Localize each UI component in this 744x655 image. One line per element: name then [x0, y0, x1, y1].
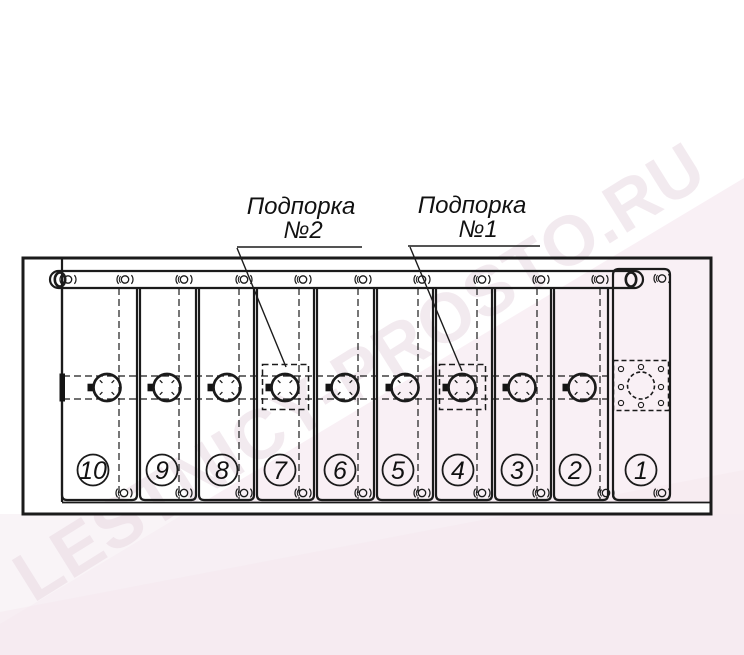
bottom-ledge [62, 503, 710, 514]
rivet-icon [117, 275, 133, 284]
callout-support2: Подпорка №2 [247, 193, 356, 244]
svg-text:3: 3 [510, 457, 524, 485]
svg-text:8: 8 [215, 457, 229, 485]
svg-text:5: 5 [391, 457, 405, 485]
support2-number: №2 [283, 217, 322, 244]
leader-line-2 [237, 248, 286, 367]
hole-circle [148, 374, 181, 401]
svg-text:4: 4 [451, 457, 465, 485]
support2-title: Подпорка [247, 193, 356, 220]
svg-text:9: 9 [155, 457, 169, 485]
svg-text:7: 7 [273, 457, 288, 485]
svg-text:1: 1 [634, 457, 648, 485]
fence-section-drawing: LESTNICY-PROSTO.RU [0, 0, 744, 655]
svg-text:2: 2 [567, 457, 582, 485]
rivet-icon [176, 275, 192, 284]
support1-title: Подпорка [418, 192, 527, 219]
hole-circle [208, 374, 241, 401]
hole-circle [88, 374, 121, 401]
svg-text:6: 6 [333, 457, 347, 485]
rivet-icon [355, 275, 371, 284]
rivet-icon [295, 275, 311, 284]
technical-drawing-page: LESTNICY-PROSTO.RU [0, 0, 744, 655]
left-end-stub [60, 374, 66, 402]
panel-number-badge: 10 [78, 455, 109, 486]
svg-text:10: 10 [79, 457, 107, 485]
background-bands [0, 178, 744, 655]
support1-number: №1 [458, 216, 497, 243]
